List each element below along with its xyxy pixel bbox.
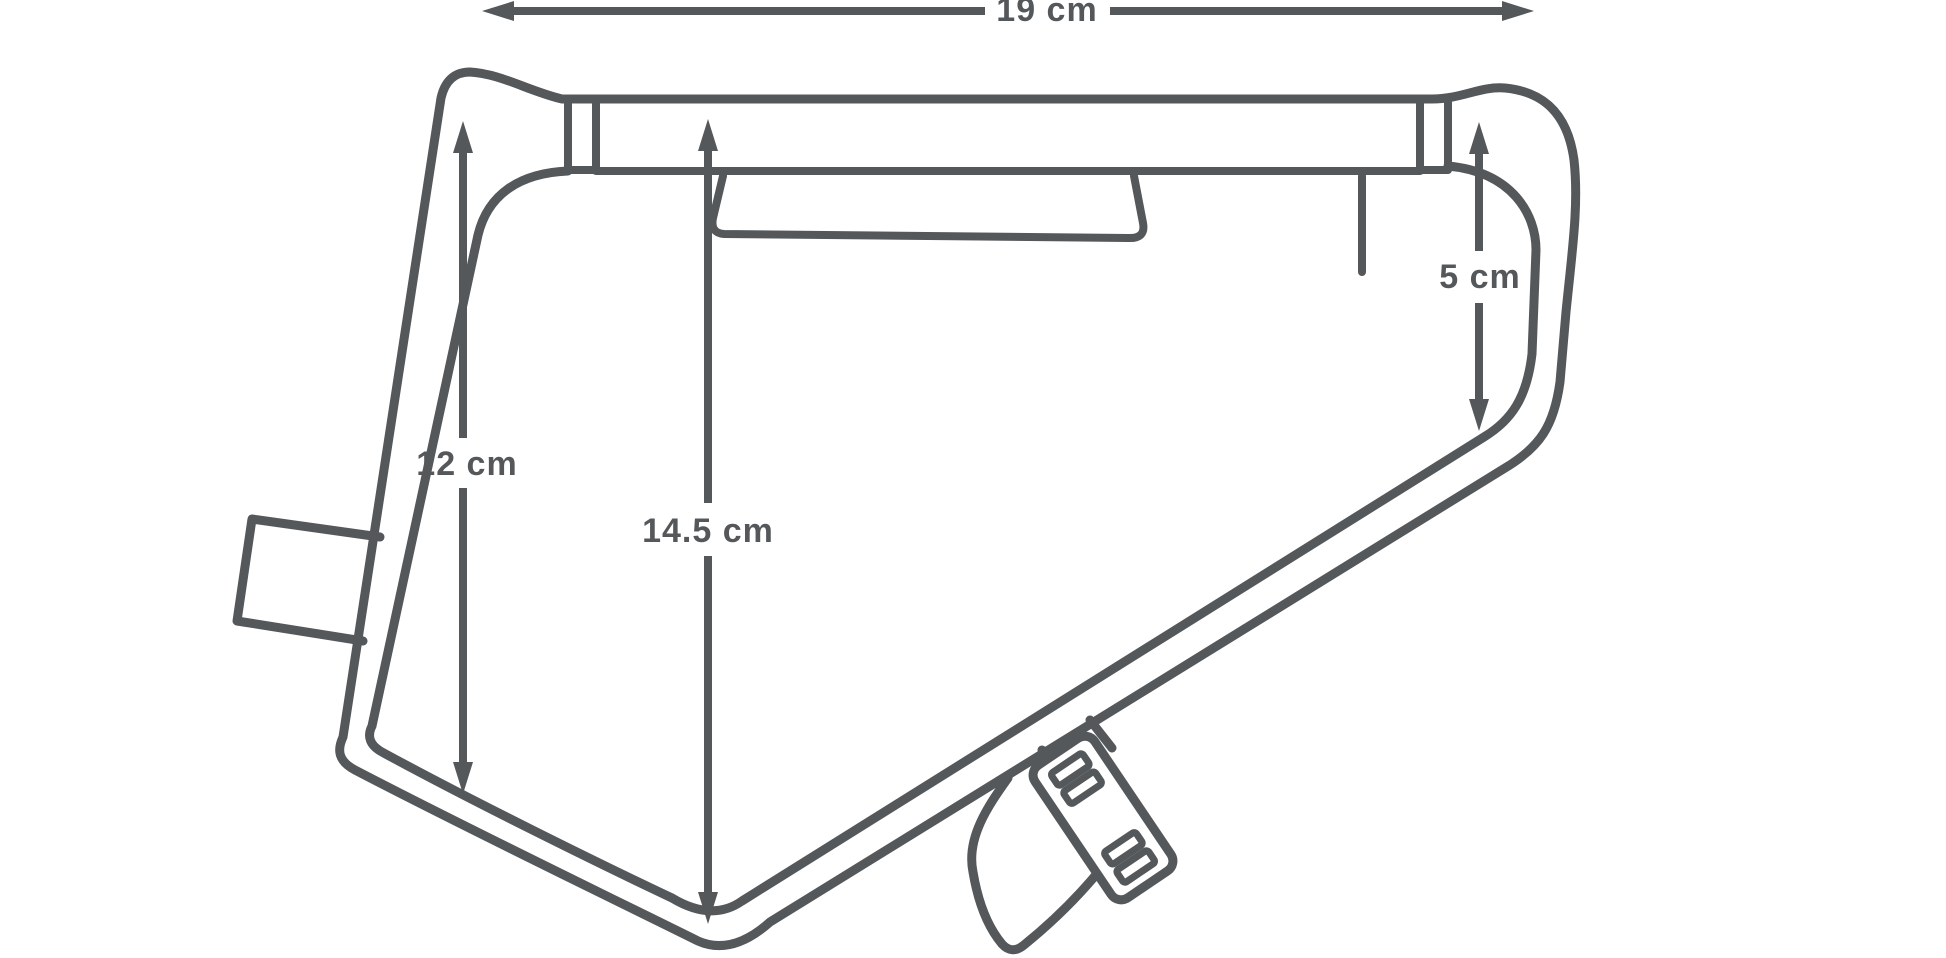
- dimension-center-height: 14.5 cm: [642, 119, 774, 924]
- diagram-canvas: 19 cm 12 cm 14.5 cm 5 cm: [0, 0, 1946, 958]
- arrowhead-up-icon: [1469, 122, 1489, 154]
- arrowhead-up-icon: [453, 121, 473, 153]
- dimension-left-height: 12 cm: [416, 121, 517, 794]
- arrowhead-down-icon: [1469, 399, 1489, 431]
- zipper-right-end-stop: [1420, 101, 1448, 170]
- zipper-left-end-stop: [568, 101, 596, 170]
- arrowhead-left-icon: [482, 1, 514, 21]
- buckle-frame: [1028, 732, 1177, 905]
- dimension-label-center-height: 14.5 cm: [642, 512, 774, 550]
- bag-inner-seam: [370, 166, 1536, 911]
- inner-flap: [712, 176, 1143, 238]
- zipper: [568, 101, 1448, 272]
- dimension-top-width: 19 cm: [482, 0, 1534, 29]
- dimension-label-right-height: 5 cm: [1439, 258, 1521, 296]
- arrowhead-up-icon: [698, 119, 718, 151]
- frame-bag-diagram: 19 cm 12 cm 14.5 cm 5 cm: [0, 0, 1946, 958]
- ladder-lock-buckle: [1028, 732, 1177, 905]
- bag-outer-outline: [340, 72, 1576, 946]
- dimension-label-top-width: 19 cm: [996, 0, 1097, 29]
- dimension-label-left-height: 12 cm: [416, 445, 517, 483]
- arrowhead-right-icon: [1502, 1, 1534, 21]
